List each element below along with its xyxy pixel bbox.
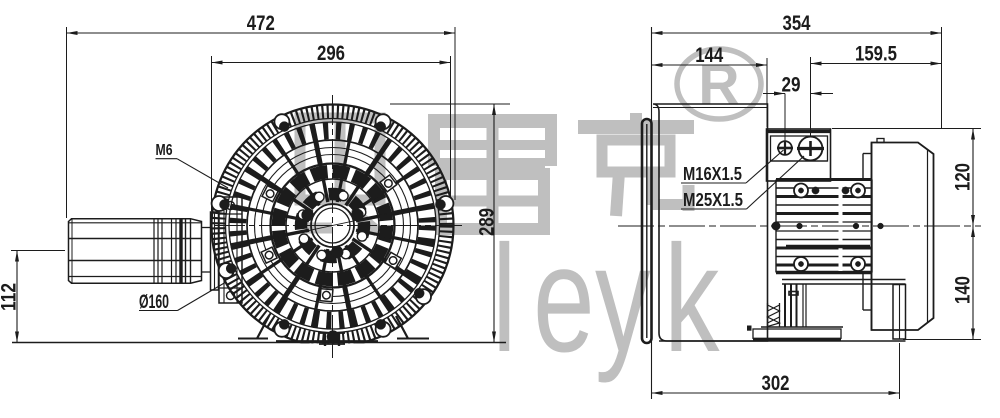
svg-text:159.5: 159.5 bbox=[855, 43, 897, 66]
svg-text:M25X1.5: M25X1.5 bbox=[683, 190, 743, 210]
svg-text:296: 296 bbox=[317, 42, 345, 65]
svg-text:354: 354 bbox=[783, 12, 811, 35]
svg-text:112: 112 bbox=[0, 283, 21, 311]
svg-text:M16X1.5: M16X1.5 bbox=[683, 164, 742, 184]
svg-text:472: 472 bbox=[247, 12, 275, 35]
svg-text:e: e bbox=[533, 215, 595, 384]
svg-text:l: l bbox=[492, 215, 517, 384]
svg-text:k: k bbox=[664, 215, 720, 384]
svg-text:29: 29 bbox=[782, 74, 801, 97]
svg-text:M6: M6 bbox=[156, 142, 173, 159]
svg-text:302: 302 bbox=[762, 372, 790, 395]
svg-text:120: 120 bbox=[952, 163, 975, 191]
svg-text:289: 289 bbox=[476, 208, 499, 236]
svg-text:140: 140 bbox=[952, 276, 975, 304]
svg-text:Ø160: Ø160 bbox=[139, 292, 169, 313]
svg-text:144: 144 bbox=[695, 44, 723, 67]
